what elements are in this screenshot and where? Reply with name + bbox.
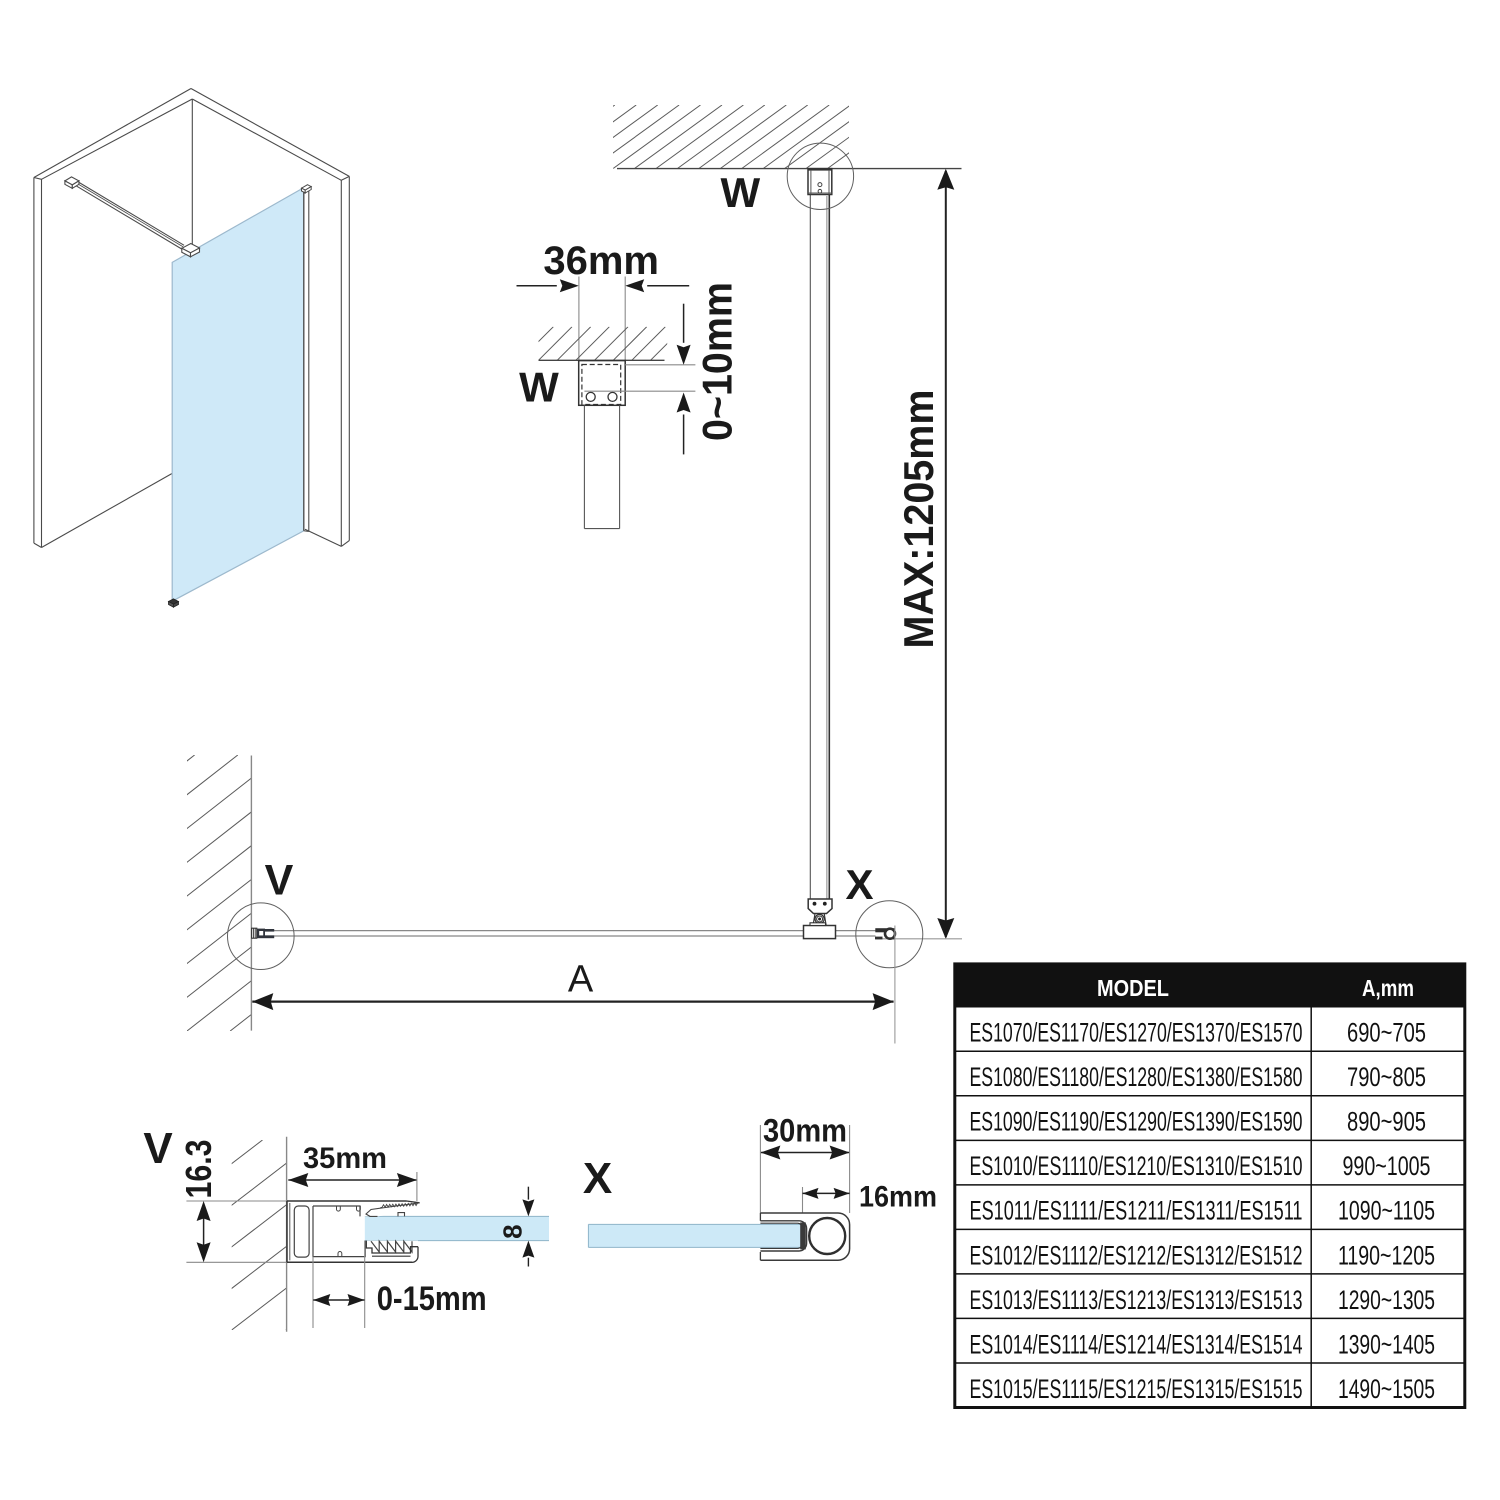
svg-text:A: A xyxy=(568,959,594,1001)
svg-text:ES1070/ES1170/ES1270/ES1370/ES: ES1070/ES1170/ES1270/ES1370/ES1570 xyxy=(970,1018,1303,1048)
svg-text:V: V xyxy=(143,1124,173,1173)
svg-text:690~705: 690~705 xyxy=(1347,1018,1426,1048)
svg-text:ES1080/ES1180/ES1280/ES1380/ES: ES1080/ES1180/ES1280/ES1380/ES1580 xyxy=(970,1062,1303,1092)
svg-text:0~10mm: 0~10mm xyxy=(694,282,741,441)
svg-text:MAX:1205mm: MAX:1205mm xyxy=(895,390,942,649)
svg-text:1490~1505: 1490~1505 xyxy=(1338,1374,1435,1404)
svg-text:790~805: 790~805 xyxy=(1347,1062,1426,1092)
svg-text:X: X xyxy=(583,1154,612,1203)
svg-text:V: V xyxy=(265,857,294,905)
svg-text:8: 8 xyxy=(498,1224,528,1238)
svg-text:A,mm: A,mm xyxy=(1362,975,1414,1001)
svg-text:X: X xyxy=(845,861,873,908)
svg-text:890~905: 890~905 xyxy=(1347,1107,1426,1137)
svg-text:35mm: 35mm xyxy=(303,1142,387,1175)
svg-text:W: W xyxy=(720,169,760,216)
svg-text:0-15mm: 0-15mm xyxy=(377,1280,487,1318)
svg-text:ES1014/ES1114/ES1214/ES1314/ES: ES1014/ES1114/ES1214/ES1314/ES1514 xyxy=(970,1329,1303,1359)
svg-text:1090~1105: 1090~1105 xyxy=(1338,1196,1435,1226)
svg-text:1390~1405: 1390~1405 xyxy=(1338,1329,1435,1359)
svg-text:1290~1305: 1290~1305 xyxy=(1338,1285,1435,1315)
svg-text:ES1090/ES1190/ES1290/ES1390/ES: ES1090/ES1190/ES1290/ES1390/ES1590 xyxy=(970,1107,1303,1137)
svg-text:MODEL: MODEL xyxy=(1097,975,1169,1001)
svg-text:W: W xyxy=(519,364,559,411)
svg-text:ES1010/ES1110/ES1210/ES1310/ES: ES1010/ES1110/ES1210/ES1310/ES1510 xyxy=(970,1151,1303,1181)
svg-text:ES1013/ES1113/ES1213/ES1313/ES: ES1013/ES1113/ES1213/ES1313/ES1513 xyxy=(970,1285,1303,1315)
svg-text:16.3: 16.3 xyxy=(178,1140,219,1199)
svg-text:36mm: 36mm xyxy=(543,239,659,283)
svg-text:990~1005: 990~1005 xyxy=(1343,1151,1431,1181)
svg-text:ES1011/ES1111/ES1211/ES1311/ES: ES1011/ES1111/ES1211/ES1311/ES1511 xyxy=(970,1196,1303,1226)
svg-text:16mm: 16mm xyxy=(859,1181,937,1214)
svg-text:30mm: 30mm xyxy=(763,1113,847,1149)
svg-text:ES1012/ES1112/ES1212/ES1312/ES: ES1012/ES1112/ES1212/ES1312/ES1512 xyxy=(970,1240,1303,1270)
svg-text:ES1015/ES1115/ES1215/ES1315/ES: ES1015/ES1115/ES1215/ES1315/ES1515 xyxy=(970,1374,1303,1404)
svg-text:1190~1205: 1190~1205 xyxy=(1338,1240,1435,1270)
